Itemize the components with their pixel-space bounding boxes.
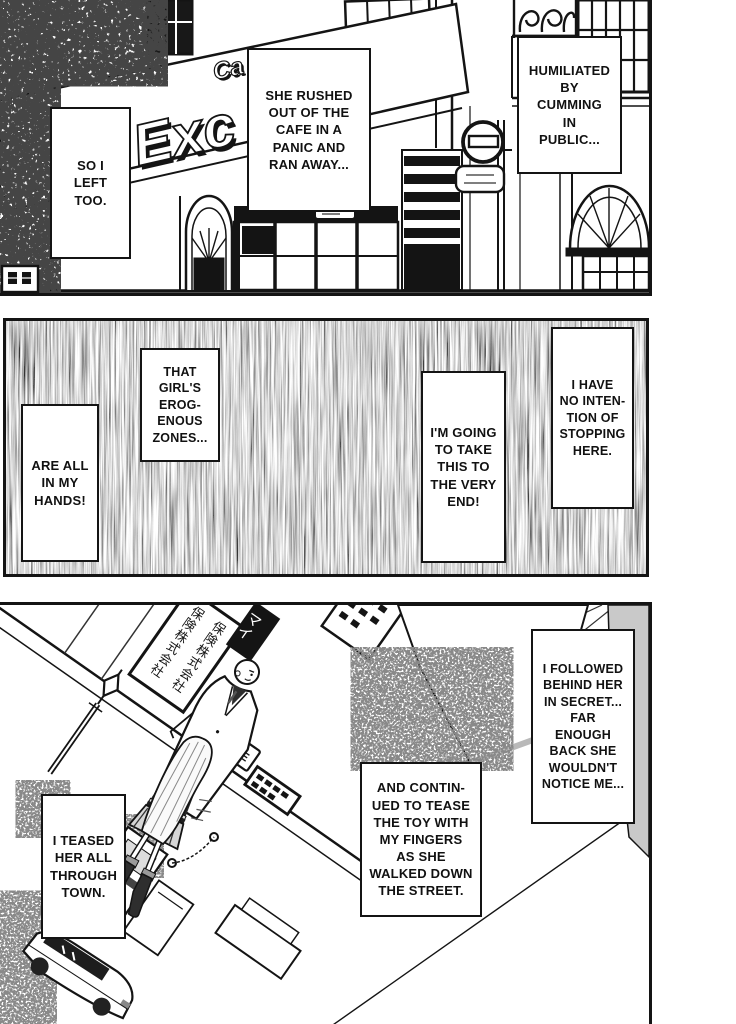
caption-are-all-in-my-hands: ARE ALL IN MY HANDS! <box>21 404 99 562</box>
caption-humiliated: HUMILIATED BY CUMMING IN PUBLIC... <box>517 36 622 174</box>
caption-that-girls-zones: THAT GIRL'S EROG- ENOUS ZONES... <box>140 348 220 462</box>
tiny-white-sign-in-ivy <box>2 266 38 292</box>
caption-no-intention-of-stopping: I HAVE NO INTEN- TION OF STOPPING HERE. <box>551 327 634 509</box>
manga-page: Ca Ca Exc Exc <box>0 0 736 1024</box>
caption-so-i-left-too: SO I LEFT TOO. <box>50 107 131 259</box>
arched-door <box>186 196 232 290</box>
sign-plate <box>456 166 504 192</box>
caption-she-rushed-out: SHE RUSHED OUT OF THE CAFE IN A PANIC AN… <box>247 48 371 212</box>
caption-im-going-to-take-this: I'M GOING TO TAKE THIS TO THE VERY END! <box>421 371 506 563</box>
slatted-doorway <box>402 150 462 290</box>
caption-and-continued-to-tease: AND CONTIN- UED TO TEASE THE TOY WITH MY… <box>360 762 482 917</box>
caption-i-teased-her: I TEASED HER ALL THROUGH TOWN. <box>41 794 126 939</box>
static-noise-texture <box>6 321 646 574</box>
caption-i-followed-behind: I FOLLOWED BEHIND HER IN SECRET... FAR E… <box>531 629 635 824</box>
